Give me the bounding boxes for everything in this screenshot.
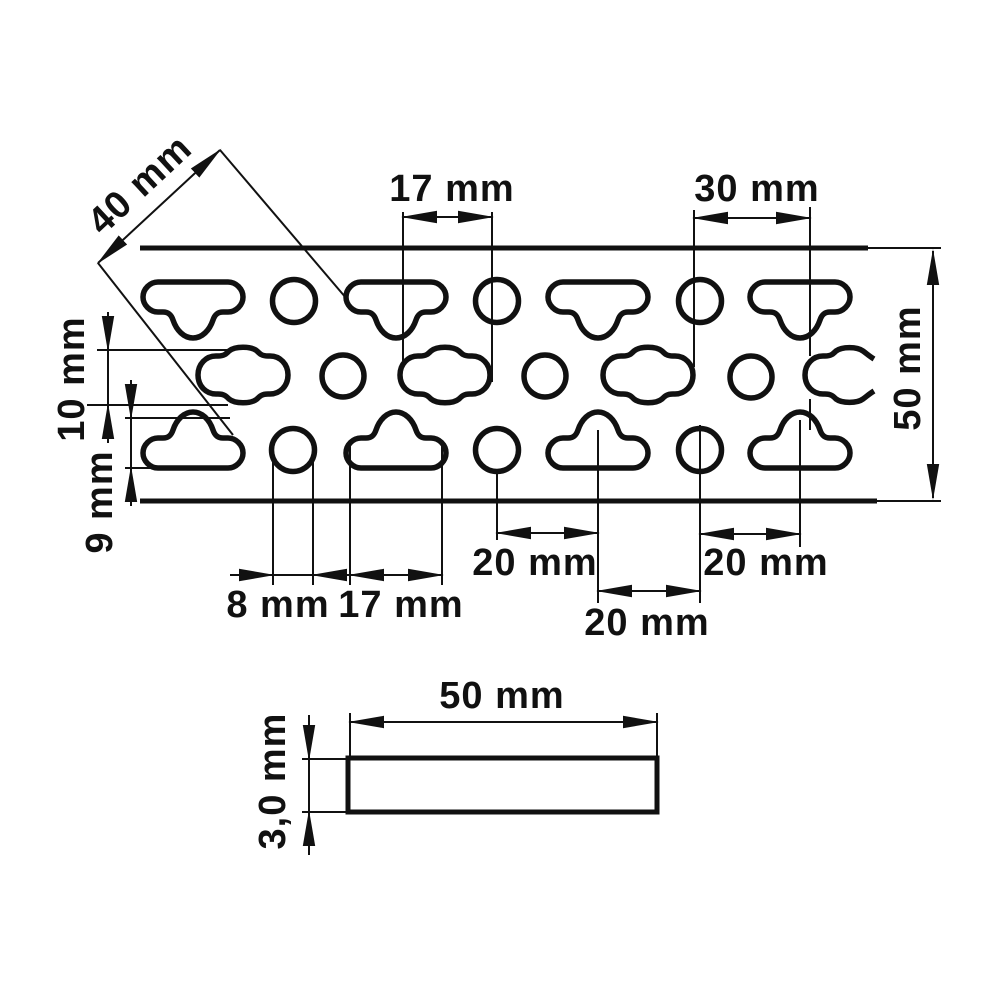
holes-row-1 [143, 280, 850, 339]
round-hole [272, 429, 315, 472]
dim-label-top-slot-width: 17 mm [389, 168, 514, 210]
holes-row-3 [143, 412, 850, 472]
round-hole [476, 280, 519, 323]
holes-row-2 [198, 347, 874, 403]
cloud-slot [750, 282, 850, 338]
cloud-slot-double [400, 347, 490, 403]
technical-drawing-page: 40 mm 17 mm 30 mm 50 mm 10 mm 9 mm [0, 0, 1000, 1000]
dim-label-middle-hole-height: 10 mm [51, 316, 93, 441]
cloud-slot-mirrored [346, 412, 446, 468]
dim-label-spacing-1: 20 mm [472, 542, 597, 584]
dim-label-top-hole-spacing: 30 mm [694, 168, 819, 210]
dim-label-bottom-hole-height: 9 mm [79, 450, 121, 553]
round-hole [322, 355, 364, 397]
cloud-slot-cut-open [805, 348, 874, 403]
dim-label-section-width: 50 mm [439, 675, 564, 717]
cloud-slot-double [198, 347, 288, 403]
dimension-diagonal-pitch: 40 mm [80, 127, 220, 263]
dim-label-spacing-2: 20 mm [584, 602, 709, 644]
dim-label-spacing-3: 20 mm [703, 542, 828, 584]
dimension-strip-width: 50 mm [887, 251, 933, 498]
round-hole [679, 280, 722, 323]
dim-label-strip-width: 50 mm [887, 305, 929, 430]
cloud-slot [548, 282, 648, 338]
dim-label-bottom-slot-width: 17 mm [338, 584, 463, 626]
cloud-slot [346, 282, 446, 338]
cross-section-view: 50 mm 3,0 mm [252, 675, 657, 855]
dimension-hole-diameter: 8 mm [226, 450, 350, 626]
cloud-slot-mirrored [143, 412, 243, 468]
round-hole [476, 429, 519, 472]
technical-drawing: 40 mm 17 mm 30 mm 50 mm 10 mm 9 mm [0, 0, 1000, 1000]
cloud-slot [143, 282, 243, 338]
cross-section-profile [348, 758, 657, 812]
round-hole [524, 355, 566, 397]
dim-label-hole-diameter: 8 mm [226, 584, 329, 626]
round-hole [730, 356, 772, 398]
round-hole [273, 280, 316, 323]
dim-label-section-thickness: 3,0 mm [252, 713, 294, 850]
cloud-slot-double [603, 347, 693, 403]
